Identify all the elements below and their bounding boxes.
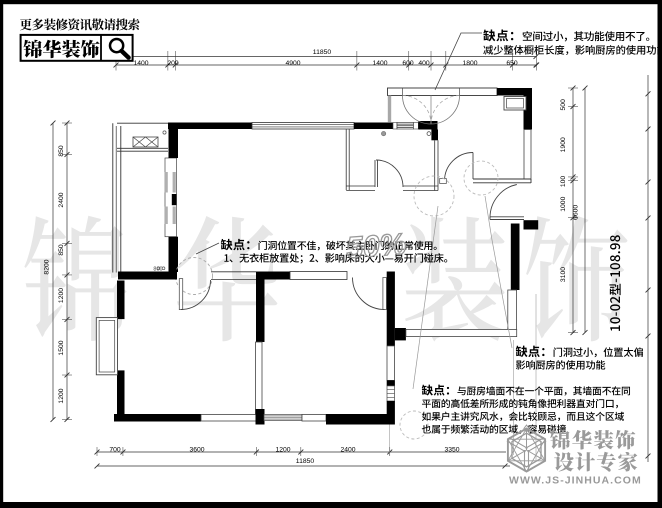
svg-text:2400: 2400 xyxy=(340,447,355,454)
svg-text:700: 700 xyxy=(109,447,121,454)
svg-text:11850: 11850 xyxy=(296,458,315,465)
svg-text:4900: 4900 xyxy=(285,60,300,67)
svg-text:100: 100 xyxy=(560,176,567,188)
svg-text:200: 200 xyxy=(167,60,179,67)
svg-text:3100: 3100 xyxy=(560,267,567,282)
svg-text:850: 850 xyxy=(58,244,65,256)
svg-text:1200: 1200 xyxy=(275,447,290,454)
svg-text:1400: 1400 xyxy=(133,60,148,67)
svg-text:3350: 3350 xyxy=(444,447,459,454)
svg-text:650: 650 xyxy=(506,60,518,67)
svg-text:1400: 1400 xyxy=(372,60,387,67)
svg-text:2400: 2400 xyxy=(58,192,65,207)
svg-text:3600: 3600 xyxy=(189,447,204,454)
svg-text:50%: 50% xyxy=(345,228,407,265)
svg-text:WWW.JS-JINHUA.COM: WWW.JS-JINHUA.COM xyxy=(509,475,642,487)
svg-text:1200: 1200 xyxy=(58,288,65,303)
svg-text:600: 600 xyxy=(402,60,414,67)
svg-text:6600: 6600 xyxy=(573,205,580,220)
svg-text:1800: 1800 xyxy=(462,60,477,67)
svg-text:1200: 1200 xyxy=(58,388,65,403)
svg-text:1500: 1500 xyxy=(58,340,65,355)
svg-text:11850: 11850 xyxy=(313,49,332,56)
svg-text:850: 850 xyxy=(58,145,65,157)
svg-text:1900: 1900 xyxy=(560,137,567,152)
svg-text:800: 800 xyxy=(153,267,162,273)
svg-text:500: 500 xyxy=(560,99,567,111)
svg-text:1000: 1000 xyxy=(560,196,567,211)
svg-text:8200: 8200 xyxy=(44,259,51,274)
svg-text:400: 400 xyxy=(418,60,430,67)
